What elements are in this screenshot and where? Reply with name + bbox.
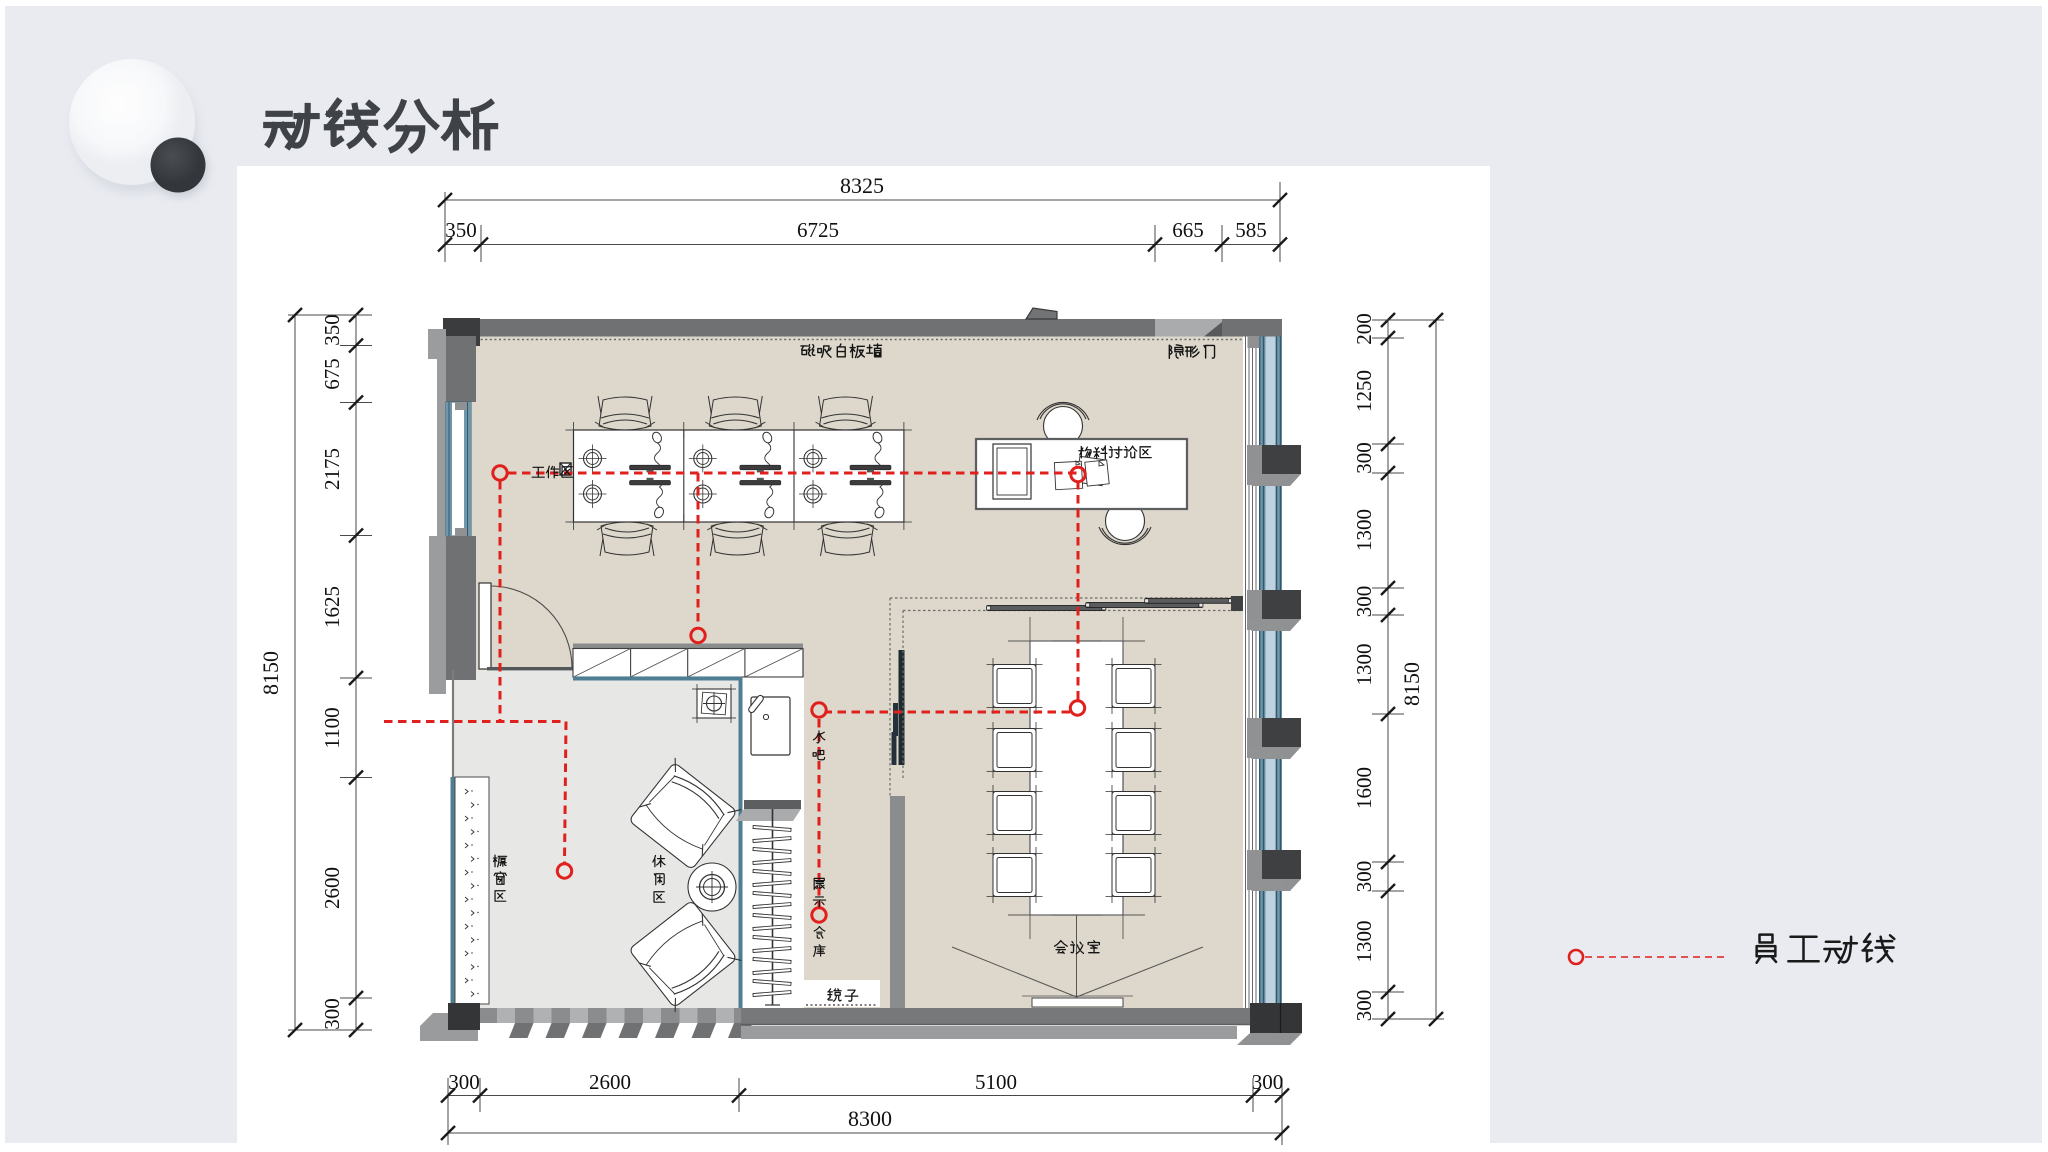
svg-text:8300: 8300	[848, 1106, 892, 1131]
svg-text:1625: 1625	[320, 586, 344, 628]
svg-text:8150: 8150	[258, 651, 283, 695]
svg-text:300: 300	[1252, 1070, 1284, 1094]
svg-text:665: 665	[1172, 218, 1204, 242]
svg-text:1100: 1100	[320, 707, 344, 748]
svg-text:1300: 1300	[1352, 644, 1376, 686]
svg-text:2600: 2600	[320, 867, 344, 909]
svg-text:8150: 8150	[1399, 662, 1424, 706]
svg-text:6725: 6725	[797, 218, 839, 242]
svg-text:350: 350	[445, 218, 477, 242]
svg-text:675: 675	[320, 358, 344, 390]
svg-text:8325: 8325	[840, 173, 884, 198]
svg-text:300: 300	[1352, 586, 1376, 618]
svg-text:300: 300	[1352, 861, 1376, 893]
svg-text:300: 300	[1352, 442, 1376, 474]
svg-text:300: 300	[448, 1070, 480, 1094]
svg-text:200: 200	[1352, 313, 1376, 345]
svg-text:350: 350	[320, 314, 344, 346]
svg-text:585: 585	[1235, 218, 1267, 242]
svg-text:300: 300	[320, 998, 344, 1030]
svg-text:1300: 1300	[1352, 921, 1376, 963]
svg-text:1600: 1600	[1352, 767, 1376, 809]
svg-text:1300: 1300	[1352, 509, 1376, 551]
svg-text:5100: 5100	[975, 1070, 1017, 1094]
svg-text:2175: 2175	[320, 448, 344, 490]
svg-text:300: 300	[1352, 990, 1376, 1022]
svg-text:1250: 1250	[1352, 370, 1376, 412]
svg-text:2600: 2600	[589, 1070, 631, 1094]
